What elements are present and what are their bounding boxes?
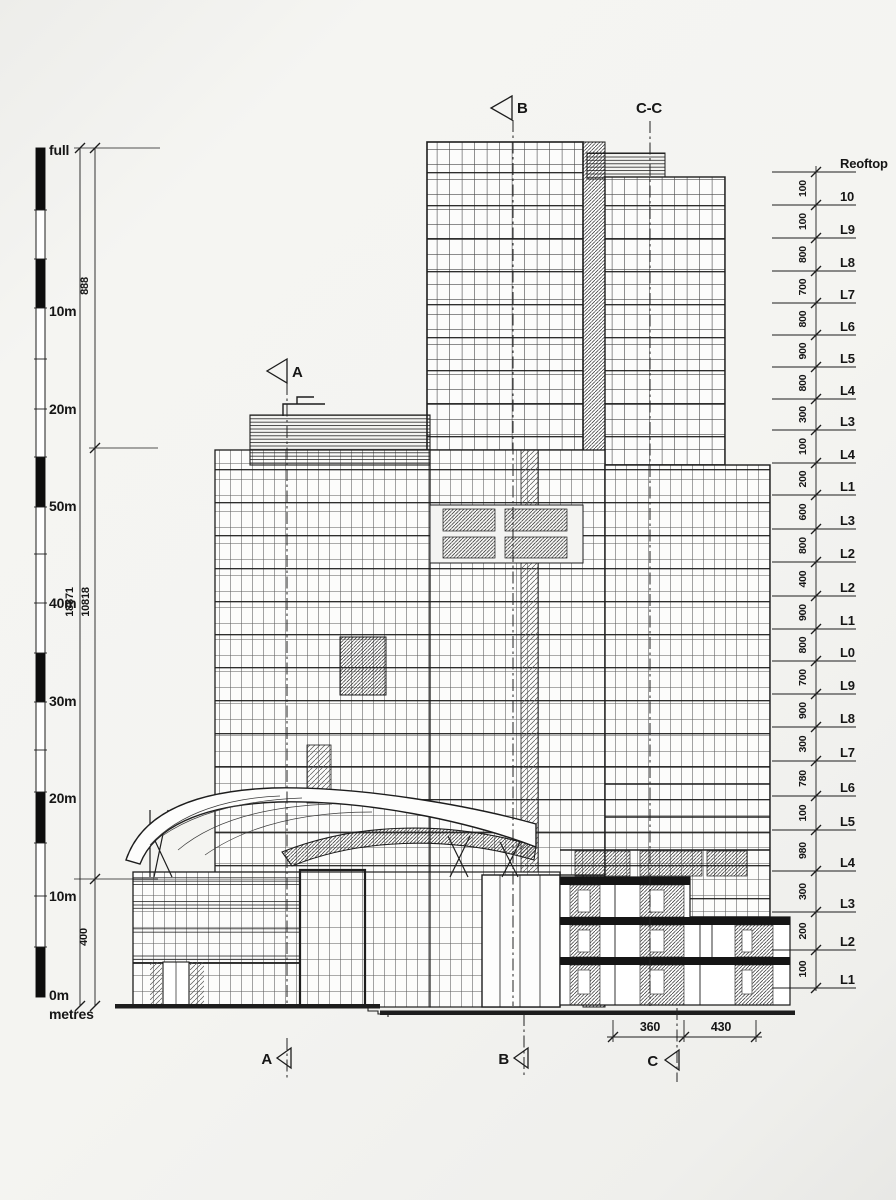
scale-bar-label: 10m xyxy=(49,888,76,904)
level-label: L2 xyxy=(840,580,855,595)
wing-floor-slab xyxy=(560,957,790,965)
level-label: 10 xyxy=(840,189,854,204)
section-label-b: B xyxy=(498,1051,509,1068)
wing-window xyxy=(742,970,752,994)
wing-window xyxy=(650,930,664,952)
spandrel-panel xyxy=(443,537,495,558)
level-dimension-text: 200 xyxy=(797,470,809,487)
level-label: L3 xyxy=(840,414,855,429)
right-tower-floors xyxy=(605,177,725,465)
wing-floor-slab xyxy=(560,917,790,925)
scale-bar-label: full xyxy=(49,142,69,158)
dimension-text: 360 xyxy=(640,1020,661,1034)
scale-bar-segment xyxy=(36,457,45,507)
wing-floor-slab xyxy=(560,877,690,885)
level-label: L6 xyxy=(840,319,855,334)
spandrel-panel xyxy=(575,851,630,876)
level-dimension-text: 700 xyxy=(797,669,809,686)
scale-bar-label: 20m xyxy=(49,790,76,806)
wing-window xyxy=(578,930,590,952)
dimension-text: 430 xyxy=(711,1020,732,1034)
glazed-wall xyxy=(482,875,560,1007)
level-label: L3 xyxy=(840,896,855,911)
level-dimension-text: 700 xyxy=(797,278,809,295)
level-dimension-text: 100 xyxy=(797,213,809,230)
level-dimension-text: 900 xyxy=(797,702,809,719)
section-arrow-a xyxy=(277,1048,291,1068)
level-label: Reoftop xyxy=(840,156,888,171)
roof-cap-stripes xyxy=(587,153,665,179)
section-arrow-b xyxy=(491,96,512,120)
level-dimension-text: 400 xyxy=(797,570,809,587)
spandrel-panel xyxy=(505,509,567,531)
dimension-text: 888 xyxy=(79,277,91,295)
extension-line xyxy=(74,148,160,879)
spandrel-panel xyxy=(640,851,702,876)
level-dimension-text: 100 xyxy=(797,438,809,455)
roof-antenna xyxy=(283,397,325,416)
level-dimension-text: 600 xyxy=(797,503,809,520)
level-dimension-text: 980 xyxy=(797,842,809,859)
dimension-text: 400 xyxy=(78,928,90,946)
level-label: L2 xyxy=(840,546,855,561)
level-label: L1 xyxy=(840,613,855,628)
scale-bar-label: metres xyxy=(49,1006,94,1022)
scale-bar-label: 30m xyxy=(49,693,76,709)
level-dimension-text: 100 xyxy=(797,960,809,977)
wing-window xyxy=(742,930,752,952)
dimension-text: 10818 xyxy=(80,587,92,617)
level-label: L5 xyxy=(840,351,855,366)
section-arrow-b xyxy=(514,1048,528,1068)
scale-bar-segment xyxy=(36,259,45,308)
building-elevation xyxy=(115,142,795,1017)
spandrel-panel xyxy=(505,537,567,558)
level-dimension-text: 800 xyxy=(797,310,809,327)
bottom-dimension-line: 360430 xyxy=(607,1020,762,1042)
level-dimension-text: 100 xyxy=(797,804,809,821)
level-label: L5 xyxy=(840,814,855,829)
wing-window xyxy=(650,970,664,994)
level-dimension-text: 200 xyxy=(797,922,809,939)
wing-pier xyxy=(735,925,773,957)
scale-bar-label: 20m xyxy=(49,401,76,417)
hatched-panel xyxy=(340,637,386,695)
wing-window xyxy=(578,890,590,912)
level-dimension-text: 300 xyxy=(797,883,809,900)
level-label: L2 xyxy=(840,934,855,949)
wing-pier xyxy=(735,965,773,1005)
level-label: L6 xyxy=(840,780,855,795)
section-label-c-c: C-C xyxy=(636,100,662,117)
wing-window xyxy=(650,890,664,912)
scale-bar-label: 10m xyxy=(49,303,76,319)
ground-line xyxy=(115,1004,380,1009)
level-label: L8 xyxy=(840,711,855,726)
level-dimension-text: 800 xyxy=(797,374,809,391)
level-label: L0 xyxy=(840,645,855,660)
level-label: L7 xyxy=(840,287,855,302)
level-dimension-text: 800 xyxy=(797,246,809,263)
scale-bar-segment xyxy=(36,653,45,702)
scale-bar-label: 0m xyxy=(49,987,69,1003)
spandrel-panel xyxy=(443,509,495,531)
scale-bar-segment xyxy=(36,148,45,210)
level-label: L1 xyxy=(840,972,855,987)
scale-bar-label: 50m xyxy=(49,498,76,514)
ground-line xyxy=(380,1011,795,1016)
level-label: L8 xyxy=(840,255,855,270)
section-label-a: A xyxy=(292,364,303,381)
section-label-a: A xyxy=(261,1051,272,1068)
level-label: L1 xyxy=(840,479,855,494)
level-label: L9 xyxy=(840,222,855,237)
scale-bar-segment xyxy=(36,947,45,997)
level-dimension-text: 800 xyxy=(797,537,809,554)
entry-pier xyxy=(150,962,162,1007)
level-label: L3 xyxy=(840,513,855,528)
scale-bar: full10m20m50m40m30m20m10m0mmetres xyxy=(34,142,94,1022)
floor-level-annotations: Reoftop10100L9100L8800L7700L6800L5900L48… xyxy=(772,156,888,993)
level-dimension-text: 800 xyxy=(797,636,809,653)
level-label: L4 xyxy=(840,855,856,870)
elevation-drawing: full10m20m50m40m30m20m10m0mmetres 888188… xyxy=(0,0,896,1200)
level-dimension-text: 300 xyxy=(797,735,809,752)
level-dimension-text: 300 xyxy=(797,406,809,423)
scale-bar-segment xyxy=(36,792,45,843)
level-label: L9 xyxy=(840,678,855,693)
level-label: L4 xyxy=(840,383,856,398)
level-label: L7 xyxy=(840,745,855,760)
section-label-b: B xyxy=(517,100,528,117)
podium-band xyxy=(133,876,300,885)
entry-pier xyxy=(190,962,204,1007)
section-label-c: C xyxy=(647,1053,658,1070)
spandrel-panel xyxy=(707,851,747,876)
drawing-sheet: full10m20m50m40m30m20m10m0mmetres 888188… xyxy=(0,0,896,1200)
podium-band xyxy=(133,900,300,909)
level-dimension-text: 100 xyxy=(797,180,809,197)
section-arrow-a xyxy=(267,359,287,383)
podium-band xyxy=(133,926,300,935)
level-dimension-text: 780 xyxy=(797,770,809,787)
level-dimension-text: 900 xyxy=(797,342,809,359)
wing-window xyxy=(578,970,590,994)
level-label: L4 xyxy=(840,447,856,462)
dimension-text: 18871 xyxy=(64,587,76,617)
roof-parapet-stripes xyxy=(250,415,430,465)
level-dimension-text: 900 xyxy=(797,604,809,621)
